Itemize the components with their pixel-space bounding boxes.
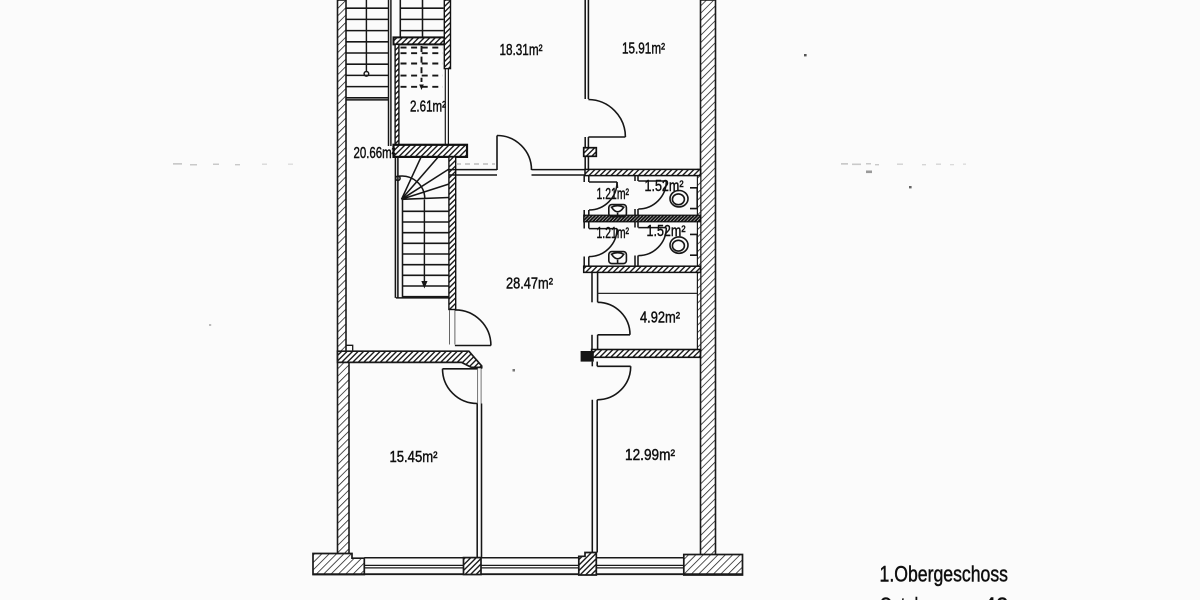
svg-text:12.99m²: 12.99m²: [625, 447, 675, 464]
svg-text:18.31m²: 18.31m²: [500, 42, 543, 59]
svg-text:15.45m²: 15.45m²: [390, 449, 438, 466]
svg-text:2.61m²: 2.61m²: [410, 99, 446, 116]
svg-text:1.52m²: 1.52m²: [647, 223, 686, 240]
svg-text:4.92m²: 4.92m²: [640, 309, 680, 326]
svg-text:28.47m²: 28.47m²: [506, 276, 553, 293]
svg-text:15.91m²: 15.91m²: [622, 40, 665, 57]
svg-text:1.21m²: 1.21m²: [597, 186, 630, 203]
svg-text:20.66m²: 20.66m²: [354, 145, 396, 162]
svg-text:1.52m²: 1.52m²: [645, 178, 684, 195]
svg-text:1.21m²: 1.21m²: [597, 225, 630, 242]
svg-text:1.Obergeschoss: 1.Obergeschoss: [880, 561, 1009, 586]
svg-text:Ostalgasse: Ostalgasse: [880, 593, 963, 600]
svg-text:40: 40: [984, 593, 1009, 600]
